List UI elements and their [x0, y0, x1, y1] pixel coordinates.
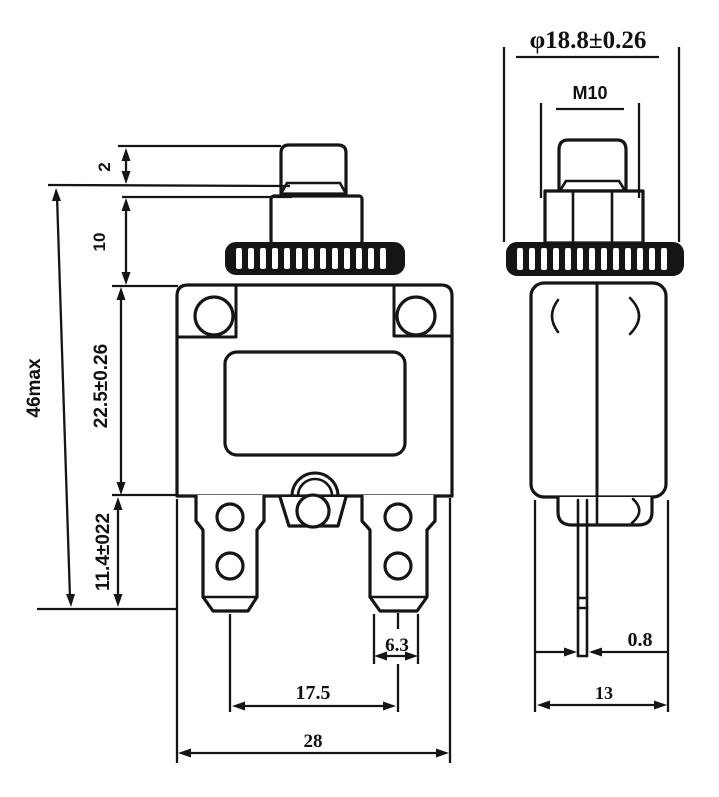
- dim-bushing-height: 10: [90, 198, 131, 285]
- side-view: [507, 140, 683, 656]
- dim-body-depth: 13: [537, 683, 667, 710]
- button-cap-front: [281, 145, 346, 194]
- arrowhead-left: [537, 701, 550, 710]
- knurl-rib-slot: [368, 248, 374, 269]
- dim-63-label: 6.3: [385, 635, 409, 656]
- terminal-left-hole-upper: [217, 504, 243, 530]
- arrowhead-right: [436, 749, 449, 758]
- knurl-rib-slot: [649, 248, 655, 270]
- arrowhead-up: [114, 497, 123, 510]
- arrowhead-right: [654, 701, 667, 710]
- mounting-hole-right: [397, 297, 435, 335]
- knurl-rib-slot: [589, 248, 595, 270]
- ext-cap-flange: [48, 185, 290, 186]
- knurl-rib-slot: [296, 248, 302, 269]
- center-boss-circle: [297, 495, 329, 527]
- knurl-rib-slot: [236, 248, 242, 269]
- knurl-rib-slot: [541, 248, 547, 270]
- circuit-breaker-dimension-drawing: 2 10 46max 22.5±0.26 11.4±02: [0, 0, 719, 797]
- dim-terminal-spacing: 17.5: [232, 682, 396, 711]
- dim-knurl-label: φ18.8±0.26: [530, 27, 647, 54]
- knurl-rib-slot: [517, 248, 523, 270]
- knurl-rib-slot: [332, 248, 338, 269]
- dim-thread-label: M10: [572, 83, 607, 103]
- technical-drawing-page: 2 10 46max 22.5±0.26 11.4±02: [0, 0, 719, 797]
- front-view: [177, 145, 452, 611]
- arrowhead-down: [117, 482, 126, 495]
- knurl-rib-slot: [625, 248, 631, 270]
- dim-terminal-tip-width: 6.3: [374, 635, 418, 661]
- knurl-rib-slot: [272, 248, 278, 269]
- terminal-boss-side: [558, 497, 652, 525]
- arrowhead-up: [52, 188, 61, 201]
- dim-2-label: 2: [95, 162, 114, 171]
- dim-28-label: 28: [304, 731, 323, 752]
- dim-terminal-height: 11.4±022: [93, 497, 123, 607]
- arrowhead-up: [122, 198, 131, 211]
- dim-46-label: 46max: [24, 358, 45, 418]
- knurl-rib-slot: [248, 248, 254, 269]
- dim-08-label: 0.8: [628, 629, 653, 651]
- arrowhead-down: [114, 594, 123, 607]
- hex-nut-side: [545, 191, 643, 243]
- arrowhead-up: [122, 148, 131, 161]
- knurl-rib-slot: [308, 248, 314, 269]
- knurl-rib-slot: [320, 248, 326, 269]
- arrowhead-right: [383, 702, 396, 711]
- knurl-rib-slot: [356, 248, 362, 269]
- knurl-rib-slot: [284, 248, 290, 269]
- knurl-rib-slot: [565, 248, 571, 270]
- knurl-rib-slot: [260, 248, 266, 269]
- mounting-hole-left: [195, 297, 233, 335]
- dim-175-label: 17.5: [296, 682, 331, 704]
- knurl-rib-slot: [380, 248, 386, 269]
- bushing-front: [271, 196, 362, 244]
- dim-button-height: 2: [95, 148, 131, 184]
- knurl-rib-slot: [601, 248, 607, 270]
- terminal-right-hole-lower: [385, 553, 411, 579]
- arrowhead-down: [122, 272, 131, 285]
- label-recess: [225, 352, 405, 455]
- button-cap-side: [559, 140, 626, 191]
- dim-total-height: 46max: [24, 188, 75, 607]
- dim-blade-thickness: 0.8: [536, 629, 667, 657]
- arrowhead-down: [122, 171, 131, 184]
- knurl-rib-slot: [577, 248, 583, 270]
- arrowhead-left: [178, 749, 191, 758]
- arrowhead-right: [564, 648, 577, 657]
- terminal-left-hole-lower: [217, 553, 243, 579]
- dim-13-label: 13: [595, 683, 613, 703]
- dim-body-width: 28: [178, 731, 449, 758]
- knurl-rib-slot: [661, 248, 667, 270]
- knurl-rib-slot: [344, 248, 350, 269]
- arrowhead-left: [589, 648, 602, 657]
- arrowhead-up: [117, 287, 126, 300]
- arrowhead-down: [66, 594, 75, 607]
- terminal-right-hole-upper: [385, 504, 411, 530]
- dim-body-height: 22.5±0.26: [91, 287, 126, 495]
- knurl-rib-slot: [529, 248, 535, 270]
- dim-114-label: 11.4±022: [93, 513, 114, 591]
- knurl-rib-slot: [553, 248, 559, 270]
- knurl-rib-slot: [637, 248, 643, 270]
- dim-46-shaft: [57, 196, 70, 598]
- dim-10-label: 10: [90, 233, 109, 252]
- knurl-rib-slot: [613, 248, 619, 270]
- dim-225-label: 22.5±0.26: [91, 344, 112, 428]
- arrowhead-left: [232, 702, 245, 711]
